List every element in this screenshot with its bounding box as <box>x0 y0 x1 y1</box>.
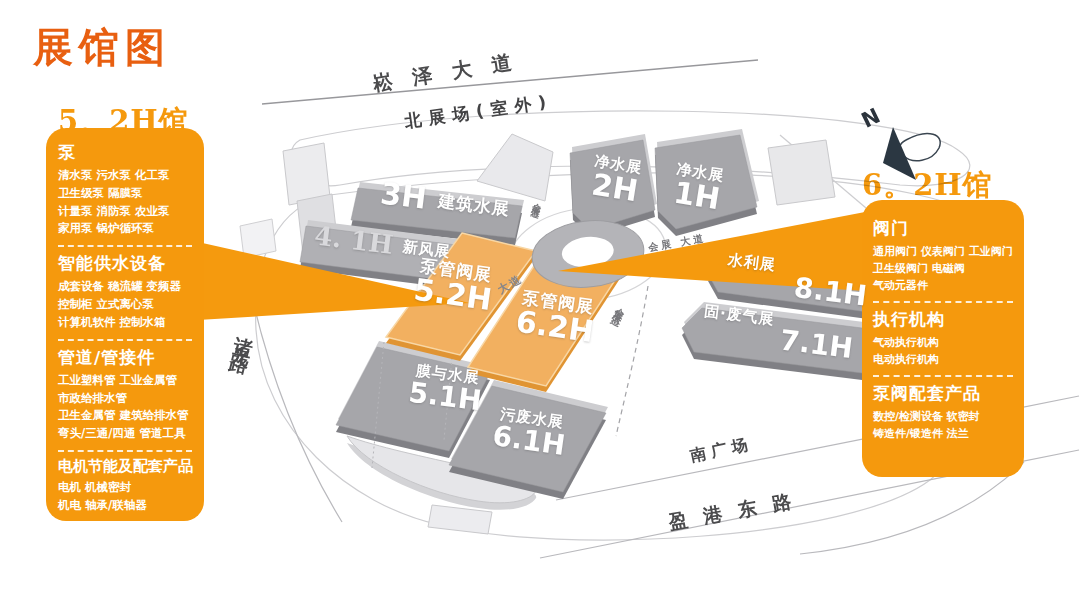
section-line: 电动执行机构 <box>873 351 1013 368</box>
hall-number: 3H <box>379 177 429 215</box>
section-line: 机电 轴承/联轴器 <box>58 497 192 515</box>
building-east-of-1h <box>768 140 835 205</box>
section-divider <box>58 450 192 452</box>
section-line: 成套设备 稳流罐 变频器 <box>58 278 192 296</box>
page-title: 展馆图 <box>33 20 171 75</box>
section-header-pumps: 泵 <box>58 141 192 164</box>
section-line: 市政给排水管 <box>58 390 192 408</box>
hall-name: 建筑水展 <box>437 191 511 218</box>
section-line: 工业塑料管 工业金属管 <box>58 372 192 390</box>
right-info-panel: 阀门 通用阀门 仪表阀门 工业阀门 卫生级阀门 电磁阀 气动元器件 执行机构 气… <box>862 200 1024 477</box>
section-line: 计量泵 消防泵 农业泵 <box>58 203 192 221</box>
section-line: 数控/检测设备 软密封 <box>873 408 1013 425</box>
section-divider <box>873 375 1013 377</box>
left-info-panel: 泵 清水泵 污水泵 化工泵 卫生级泵 隔膜泵 计量泵 消防泵 农业泵 家用泵 锅… <box>46 128 204 521</box>
section-header-motors: 电机节能及配套产品 <box>58 457 192 476</box>
section-line: 卫生金属管 建筑给排水管 <box>58 407 192 425</box>
section-header-smart-water: 智能供水设备 <box>58 252 192 275</box>
section-line: 气动元器件 <box>873 277 1013 294</box>
section-line: 电机 机械密封 <box>58 479 192 497</box>
section-line: 家用泵 锅炉循环泵 <box>58 220 192 238</box>
building-far-west <box>240 219 276 258</box>
section-line: 卫生级泵 隔膜泵 <box>58 185 192 203</box>
section-line: 气动执行机构 <box>873 334 1013 351</box>
section-header-valves: 阀门 <box>873 217 1013 240</box>
section-line: 计算机软件 控制水箱 <box>58 314 192 332</box>
section-line: 通用阀门 仪表阀门 工业阀门 <box>873 243 1013 260</box>
section-header-pipes: 管道/管接件 <box>58 346 192 369</box>
section-divider <box>58 245 192 247</box>
section-header-actuators: 执行机构 <box>873 308 1013 331</box>
section-line: 清水泵 污水泵 化工泵 <box>58 167 192 185</box>
section-divider <box>58 339 192 341</box>
section-line: 控制柜 立式离心泵 <box>58 296 192 314</box>
exhibition-map-page: 展馆图 5。2H馆 6。2H馆 泵 清水泵 污水泵 化工泵 卫生级泵 隔膜泵 计… <box>0 0 1080 600</box>
section-line: 卫生级阀门 电磁阀 <box>873 260 1013 277</box>
section-header-accessories: 泵阀配套产品 <box>873 382 1013 405</box>
section-line: 铸造件/锻造件 法兰 <box>873 425 1013 442</box>
section-divider <box>873 301 1013 303</box>
section-line: 弯头/三通/四通 管道工具 <box>58 425 192 443</box>
